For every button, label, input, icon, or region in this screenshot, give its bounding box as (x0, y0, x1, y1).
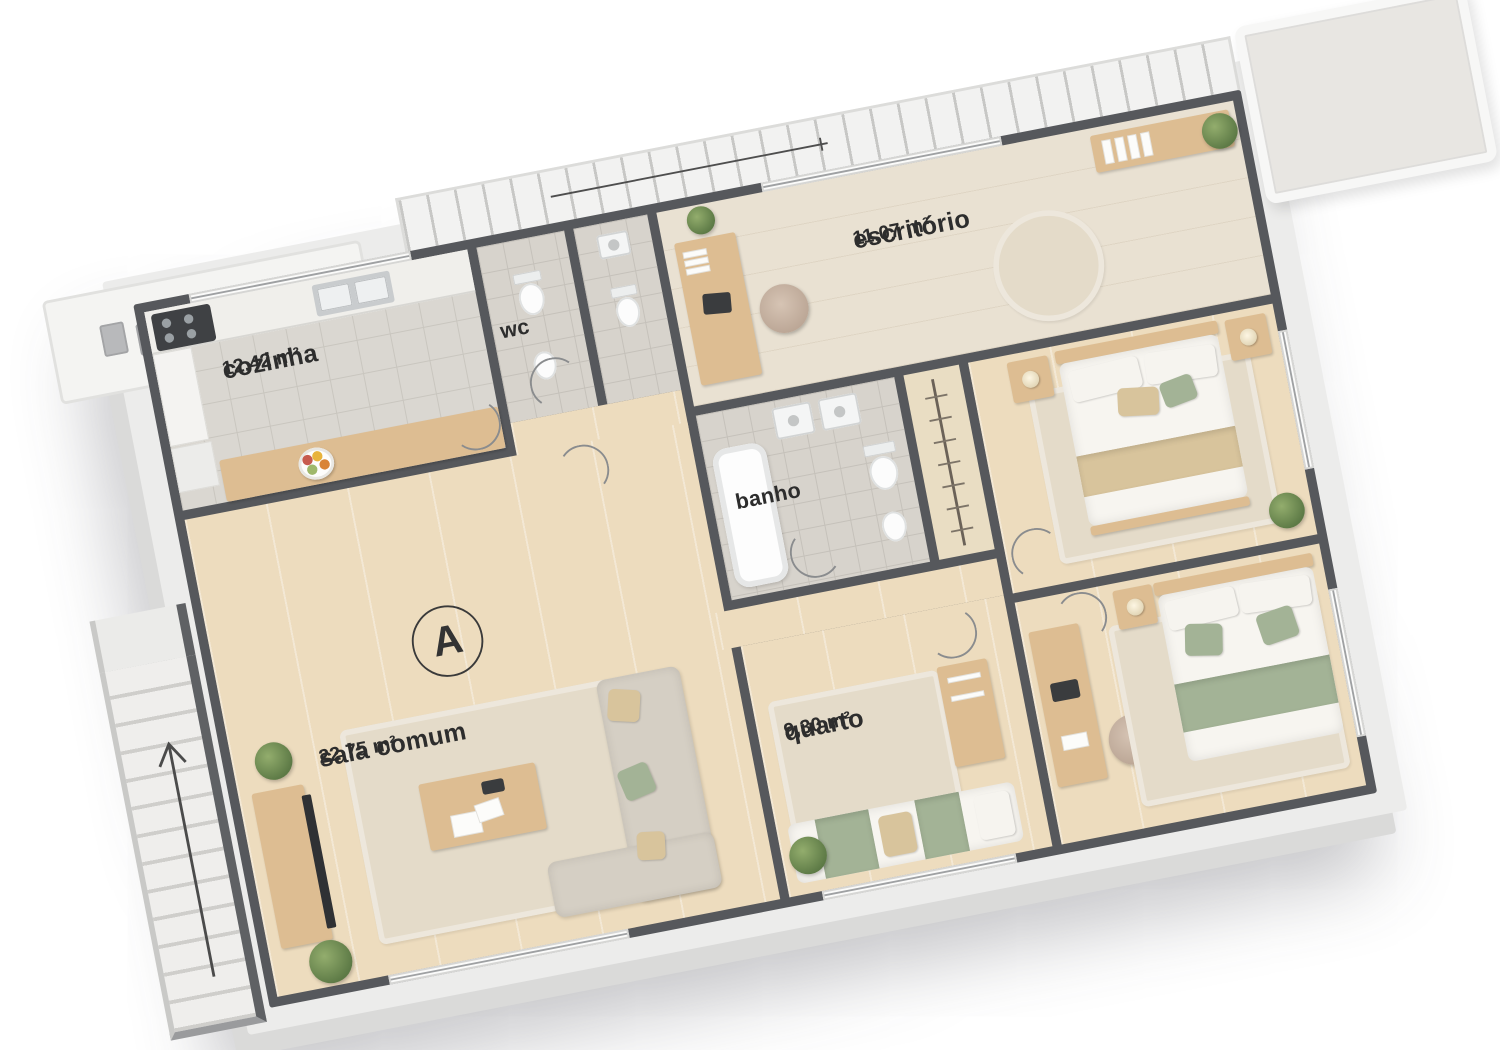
book (1128, 135, 1140, 159)
book (1102, 140, 1114, 164)
sink-basin (317, 283, 353, 311)
round-rug (984, 201, 1114, 331)
room-quarto: quarto 9,30 m² (741, 595, 1053, 897)
desk (1028, 623, 1108, 788)
kitchen-cabinet (152, 347, 209, 447)
toilet (867, 454, 901, 493)
door-arc (922, 603, 982, 663)
stove-burner (183, 313, 194, 324)
book (1115, 137, 1127, 161)
paper (685, 257, 708, 266)
plant (305, 936, 356, 987)
decor-tray (481, 778, 506, 795)
book (475, 798, 504, 822)
room-bedroom-2 (1015, 544, 1366, 845)
toilet (516, 281, 547, 317)
plant (684, 204, 717, 237)
laptop (702, 292, 732, 315)
bidet (880, 509, 910, 543)
unit-marker-letter: A (428, 615, 466, 667)
washbasin (817, 392, 862, 431)
drawer-line (952, 691, 984, 701)
door-arc (786, 523, 846, 583)
roof-terrace (1233, 0, 1498, 205)
desk (674, 232, 763, 386)
pillow (1117, 386, 1160, 416)
apartment-outline: cozinha 12,42 m² wc (133, 90, 1377, 1008)
laptop (1050, 679, 1081, 703)
washbasin (596, 230, 632, 260)
room-name: wc (498, 314, 531, 343)
pillow (607, 689, 641, 723)
pillow (636, 831, 666, 861)
room-banho: banho (696, 377, 930, 600)
entry-door-arc (554, 440, 614, 500)
pillow (1185, 623, 1223, 656)
stove-burner (164, 332, 175, 343)
room-bedroom-1 (968, 304, 1317, 594)
washbasin (771, 401, 816, 440)
paper (687, 266, 710, 275)
drawer-line (948, 673, 980, 683)
room-sala-comum: A sala comum 22,75 m² (185, 422, 781, 997)
ac-unit (99, 321, 129, 357)
dishwasher (171, 441, 220, 493)
floor-plan-scene: cozinha 12,42 m² wc (0, 0, 1500, 1000)
toilet-tank (863, 440, 897, 457)
plant (252, 739, 296, 783)
sink-basin (354, 276, 390, 304)
unit-marker: A (406, 599, 490, 683)
floor-plan: cozinha 12,42 m² wc (123, 36, 1377, 1008)
fruit (306, 464, 318, 476)
book (1141, 132, 1153, 156)
fruit (319, 458, 331, 470)
bed-blanket (815, 809, 880, 878)
stove-burner (186, 328, 197, 339)
bathtub (710, 441, 790, 590)
toilet (614, 295, 643, 329)
keyboard (1062, 733, 1089, 751)
stove-burner (161, 318, 172, 329)
office-chair (755, 280, 812, 337)
paper (683, 249, 706, 258)
